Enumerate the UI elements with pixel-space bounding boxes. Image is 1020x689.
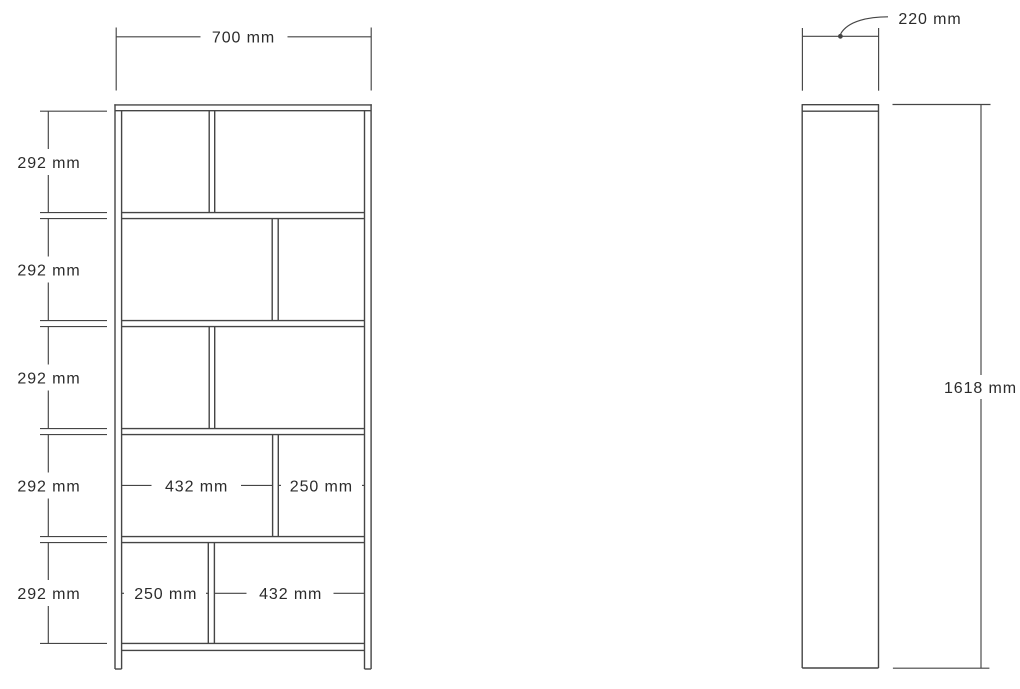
- svg-text:292 mm: 292 mm: [17, 263, 80, 280]
- svg-text:432 mm: 432 mm: [165, 479, 228, 496]
- svg-text:250 mm: 250 mm: [134, 586, 197, 603]
- svg-text:292 mm: 292 mm: [17, 586, 80, 603]
- svg-text:292 mm: 292 mm: [17, 371, 80, 388]
- svg-text:292 mm: 292 mm: [17, 155, 80, 172]
- svg-text:432 mm: 432 mm: [259, 586, 322, 603]
- svg-text:220 mm: 220 mm: [898, 11, 961, 28]
- svg-text:250 mm: 250 mm: [290, 479, 353, 496]
- svg-text:1618 mm: 1618 mm: [944, 380, 1017, 397]
- svg-text:292 mm: 292 mm: [17, 479, 80, 496]
- svg-text:700 mm: 700 mm: [212, 29, 275, 46]
